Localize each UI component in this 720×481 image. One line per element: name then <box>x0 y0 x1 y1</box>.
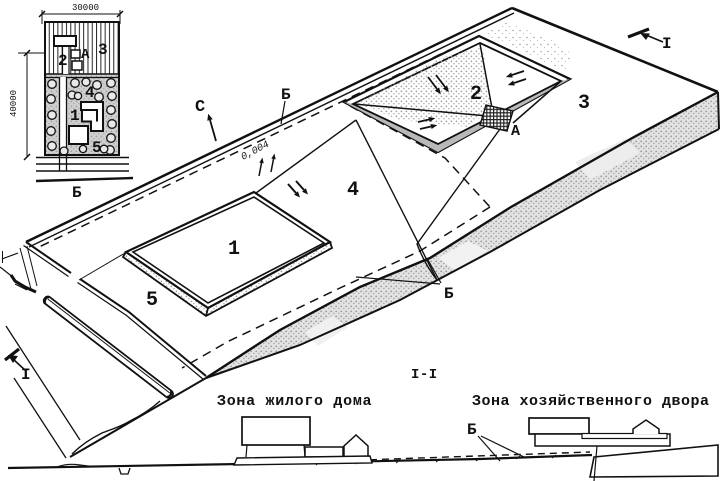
svg-text:4: 4 <box>347 179 359 202</box>
svg-text:I-I: I-I <box>411 367 438 383</box>
svg-text:2: 2 <box>58 52 68 70</box>
svg-text:1: 1 <box>228 238 240 261</box>
svg-text:3: 3 <box>578 92 590 115</box>
svg-text:30000: 30000 <box>72 3 99 13</box>
svg-text:2: 2 <box>470 83 482 106</box>
svg-text:Б: Б <box>281 86 291 104</box>
svg-text:5: 5 <box>146 289 158 312</box>
svg-text:5: 5 <box>92 139 102 157</box>
svg-text:I: I <box>662 35 672 53</box>
svg-text:I: I <box>21 366 31 384</box>
svg-text:Б: Б <box>444 285 454 303</box>
svg-text:Б: Б <box>467 421 477 439</box>
svg-text:4: 4 <box>85 84 95 102</box>
svg-text:40000: 40000 <box>9 90 19 117</box>
svg-text:С: С <box>195 98 205 117</box>
svg-text:Зона жилого дома: Зона жилого дома <box>217 393 372 410</box>
svg-text:А: А <box>81 47 90 63</box>
svg-text:Зона хозяйственного двора: Зона хозяйственного двора <box>472 393 710 410</box>
svg-text:Б: Б <box>72 184 82 202</box>
svg-text:А: А <box>511 123 520 140</box>
svg-text:3: 3 <box>98 41 108 59</box>
svg-text:1: 1 <box>70 107 80 125</box>
